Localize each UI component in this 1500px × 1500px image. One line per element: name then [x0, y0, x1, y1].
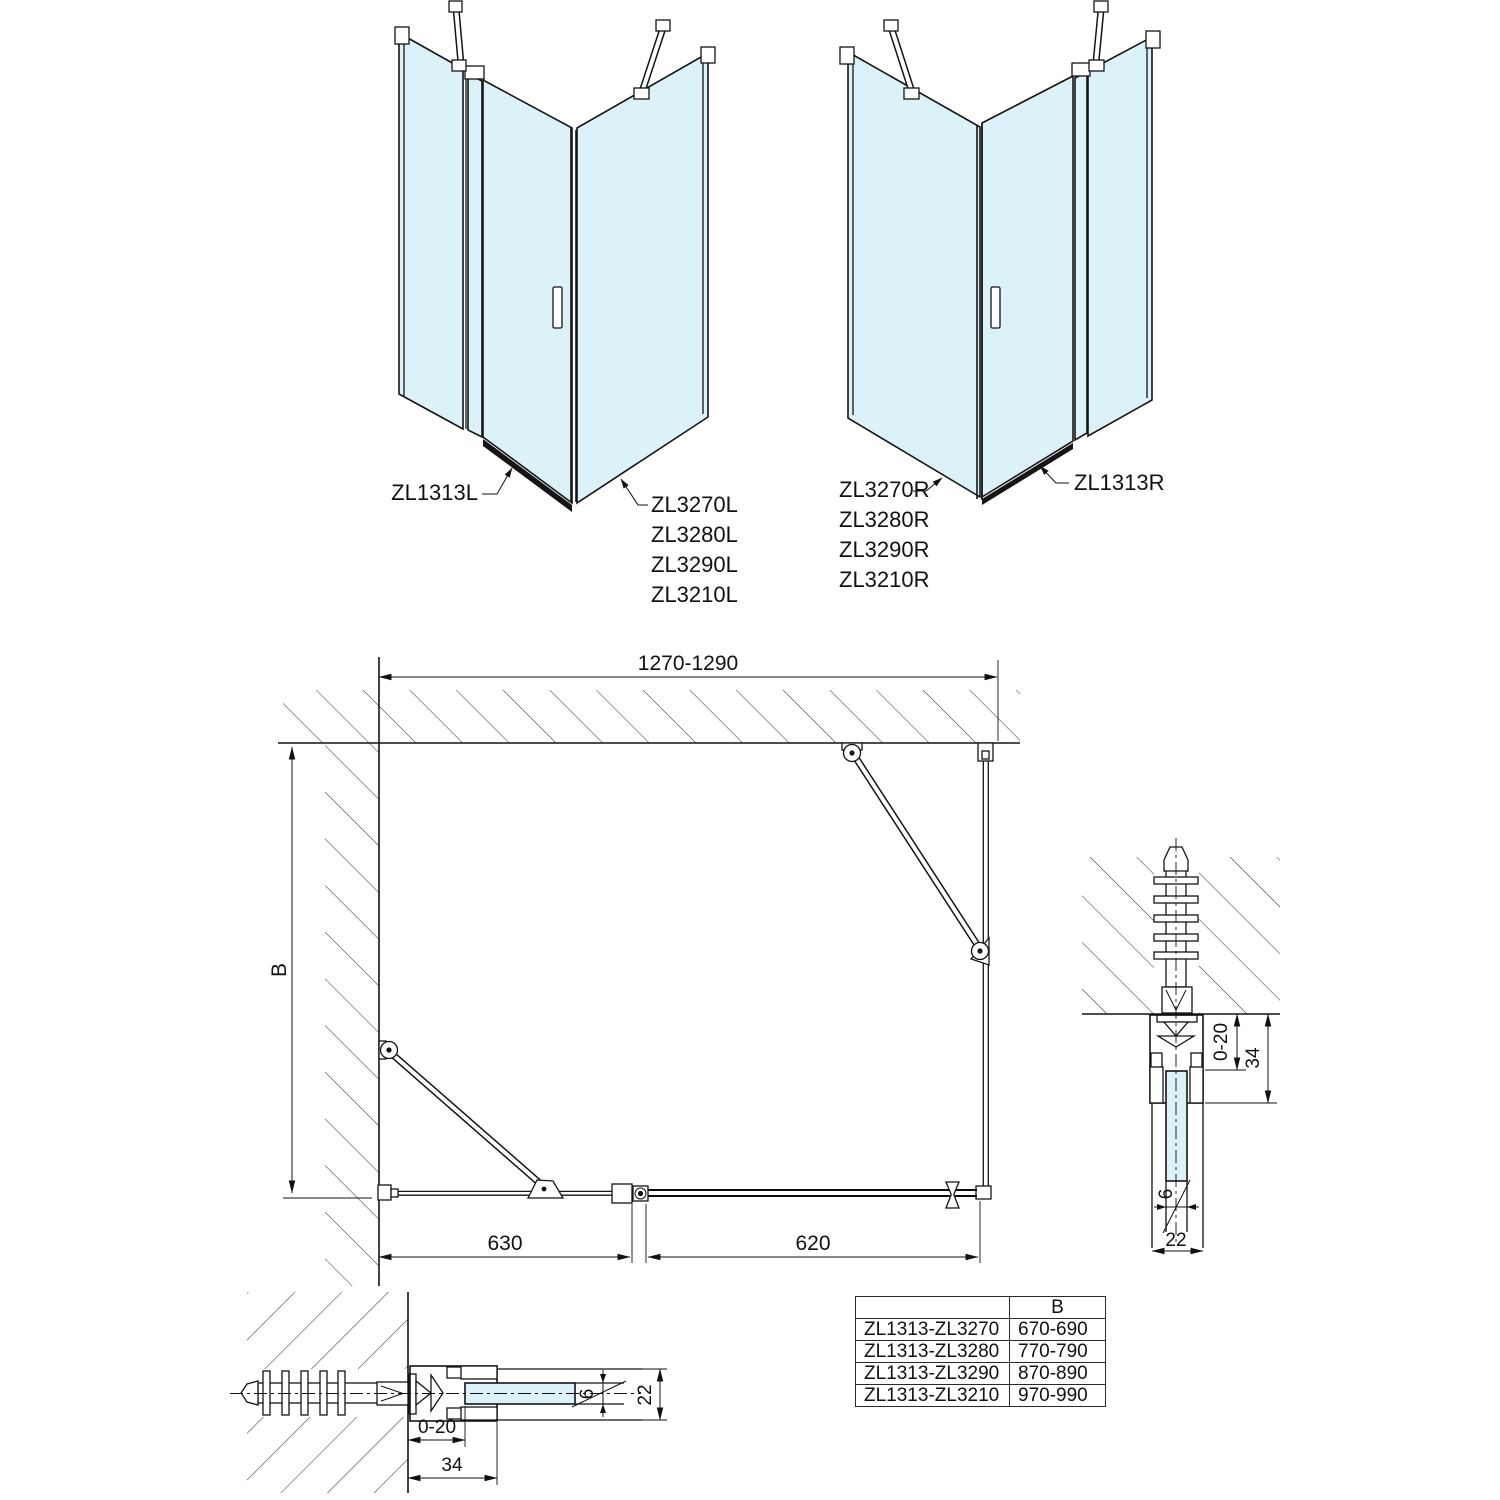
depth-dim-text: B [268, 963, 291, 977]
panel-top-cap [701, 47, 715, 63]
corner-connector [976, 1186, 991, 1199]
table-row: ZL1313-ZL3290 870-890 [856, 1363, 1106, 1385]
door-handle [553, 287, 562, 328]
size-table: B ZL1313-ZL3270 670-690 ZL1313-ZL3280 77… [855, 1296, 1106, 1407]
panel-top-cap [1146, 31, 1160, 48]
ceiling-support-rod [1089, 1, 1108, 71]
right-view-door-label: ZL3270R [839, 477, 930, 502]
wall-bracket-tab [391, 1189, 398, 1197]
left-view-return-panel [577, 53, 708, 503]
support-brace-top-right [842, 743, 989, 965]
left-view-door-label: ZL3280L [651, 522, 738, 547]
left-view-wall-side-panel [399, 33, 463, 429]
model-cell: ZL1313-ZL3290 [856, 1363, 1010, 1385]
wall-profile-cap [395, 27, 409, 44]
model-cell: ZL1313-ZL3210 [856, 1385, 1010, 1407]
right-view-wall-panel-label: ZL1313R [1074, 470, 1165, 495]
b-value-cell: 770-790 [1010, 1341, 1106, 1363]
right-view-wall-side-panel [1088, 37, 1152, 436]
left-view-door-label: ZL3270L [651, 492, 738, 517]
glass-dim-text: 6 [577, 1389, 598, 1400]
adjust-dim-text: 0-20 [418, 1417, 456, 1438]
right-view-door-label: ZL3280R [839, 507, 930, 532]
adjust-dim-text: 0-20 [1211, 1023, 1232, 1061]
width-dim-text: 1270-1290 [638, 652, 738, 675]
label-leader-line [621, 479, 648, 505]
b-column-header: B [1010, 1297, 1106, 1319]
profile-lip [1190, 1067, 1203, 1103]
support-brace-bottom-left [379, 1041, 563, 1198]
label-leader-line [1040, 466, 1069, 483]
b-value-cell: 970-990 [1010, 1385, 1106, 1407]
right-view-fixed-strip [1075, 72, 1087, 440]
pivot-dot [638, 1191, 643, 1196]
wall-mount-profile-slot [982, 751, 989, 759]
right-isometric-view: ZL3270R ZL3280R ZL3290R ZL3210R ZL1313R [839, 1, 1165, 592]
model-cell: ZL1313-ZL3280 [856, 1341, 1010, 1363]
ceiling-support-rod [449, 1, 466, 71]
frame-dim-text: 22 [635, 1384, 656, 1405]
profile-lip [461, 1366, 497, 1379]
label-leader-line [482, 468, 512, 494]
door-dim-text: 620 [795, 1232, 830, 1255]
top-wall-hatch [283, 690, 1020, 743]
left-view-door-label: ZL3290L [651, 552, 738, 577]
left-wall-hatch [325, 743, 379, 1286]
model-column-header [856, 1297, 1010, 1319]
table-row: ZL1313-ZL3270 670-690 [856, 1319, 1106, 1341]
wall-profile-detail-side: 0-20 34 6 22 [1082, 838, 1280, 1251]
wall-bracket [378, 1185, 391, 1200]
strip-top-cap [1072, 63, 1090, 76]
drawing-svg: ZL1313L ZL3270L ZL3280L ZL3290L ZL3210L … [0, 0, 1500, 1500]
b-value-cell: 670-690 [1010, 1319, 1106, 1341]
plan-view: 1270-1290 B 630 620 [268, 652, 1020, 1286]
b-value-cell: 870-890 [1010, 1363, 1106, 1385]
left-view-wall-panel-label: ZL1313L [391, 480, 478, 505]
strip-top-cap [465, 66, 484, 79]
size-table-header-row: B [856, 1297, 1106, 1319]
profile-dim-text: 34 [441, 1455, 463, 1476]
left-isometric-view: ZL1313L ZL3270L ZL3280L ZL3290L ZL3210L [391, 1, 738, 607]
model-cell: ZL1313-ZL3270 [856, 1319, 1010, 1341]
wall-profile-cap [840, 47, 854, 64]
door-handle [991, 287, 1000, 328]
frame-dim-text: 22 [1165, 1230, 1186, 1251]
right-view-return-panel [848, 52, 980, 497]
wall-profile-detail-bottom: 0-20 34 6 22 [230, 1292, 667, 1493]
glass-section [1166, 1071, 1187, 1181]
left-view-door-label: ZL3210L [651, 582, 738, 607]
profile-dim-text: 34 [1243, 1047, 1264, 1069]
left-view-fixed-strip [468, 74, 482, 437]
profile-lip [1150, 1067, 1163, 1103]
table-row: ZL1313-ZL3280 770-790 [856, 1341, 1106, 1363]
glass-dim-text: 6 [1156, 1189, 1177, 1200]
door-pivot-block [612, 1184, 632, 1203]
right-view-door-label: ZL3290R [839, 537, 930, 562]
table-row: ZL1313-ZL3210 970-990 [856, 1385, 1106, 1407]
fixed-dim-text: 630 [487, 1232, 522, 1255]
technical-drawing-sheet: ZL1313L ZL3270L ZL3280L ZL3290L ZL3210L … [0, 0, 1500, 1500]
profile-lip [461, 1407, 497, 1420]
right-view-door-label: ZL3210R [839, 567, 930, 592]
